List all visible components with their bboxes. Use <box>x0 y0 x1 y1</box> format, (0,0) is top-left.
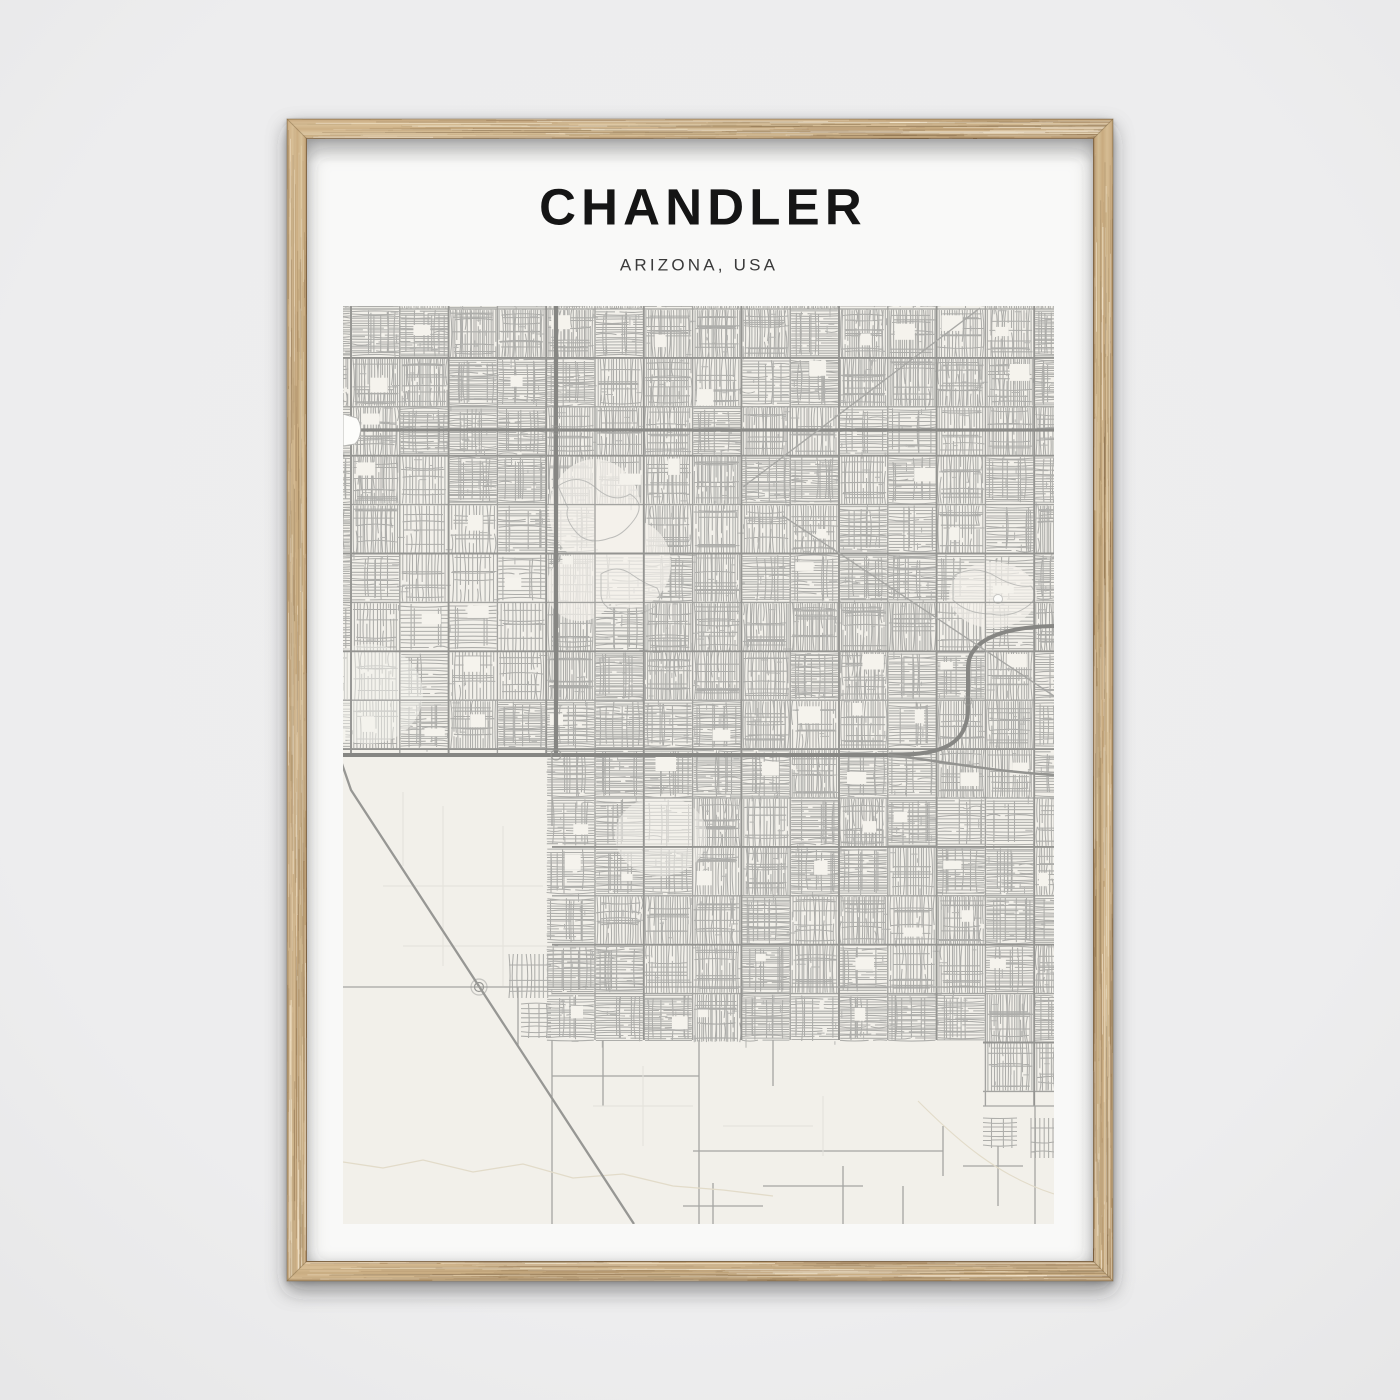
svg-text:ARIZONA, USA: ARIZONA, USA <box>620 256 778 275</box>
svg-text:CHANDLER: CHANDLER <box>539 179 867 236</box>
